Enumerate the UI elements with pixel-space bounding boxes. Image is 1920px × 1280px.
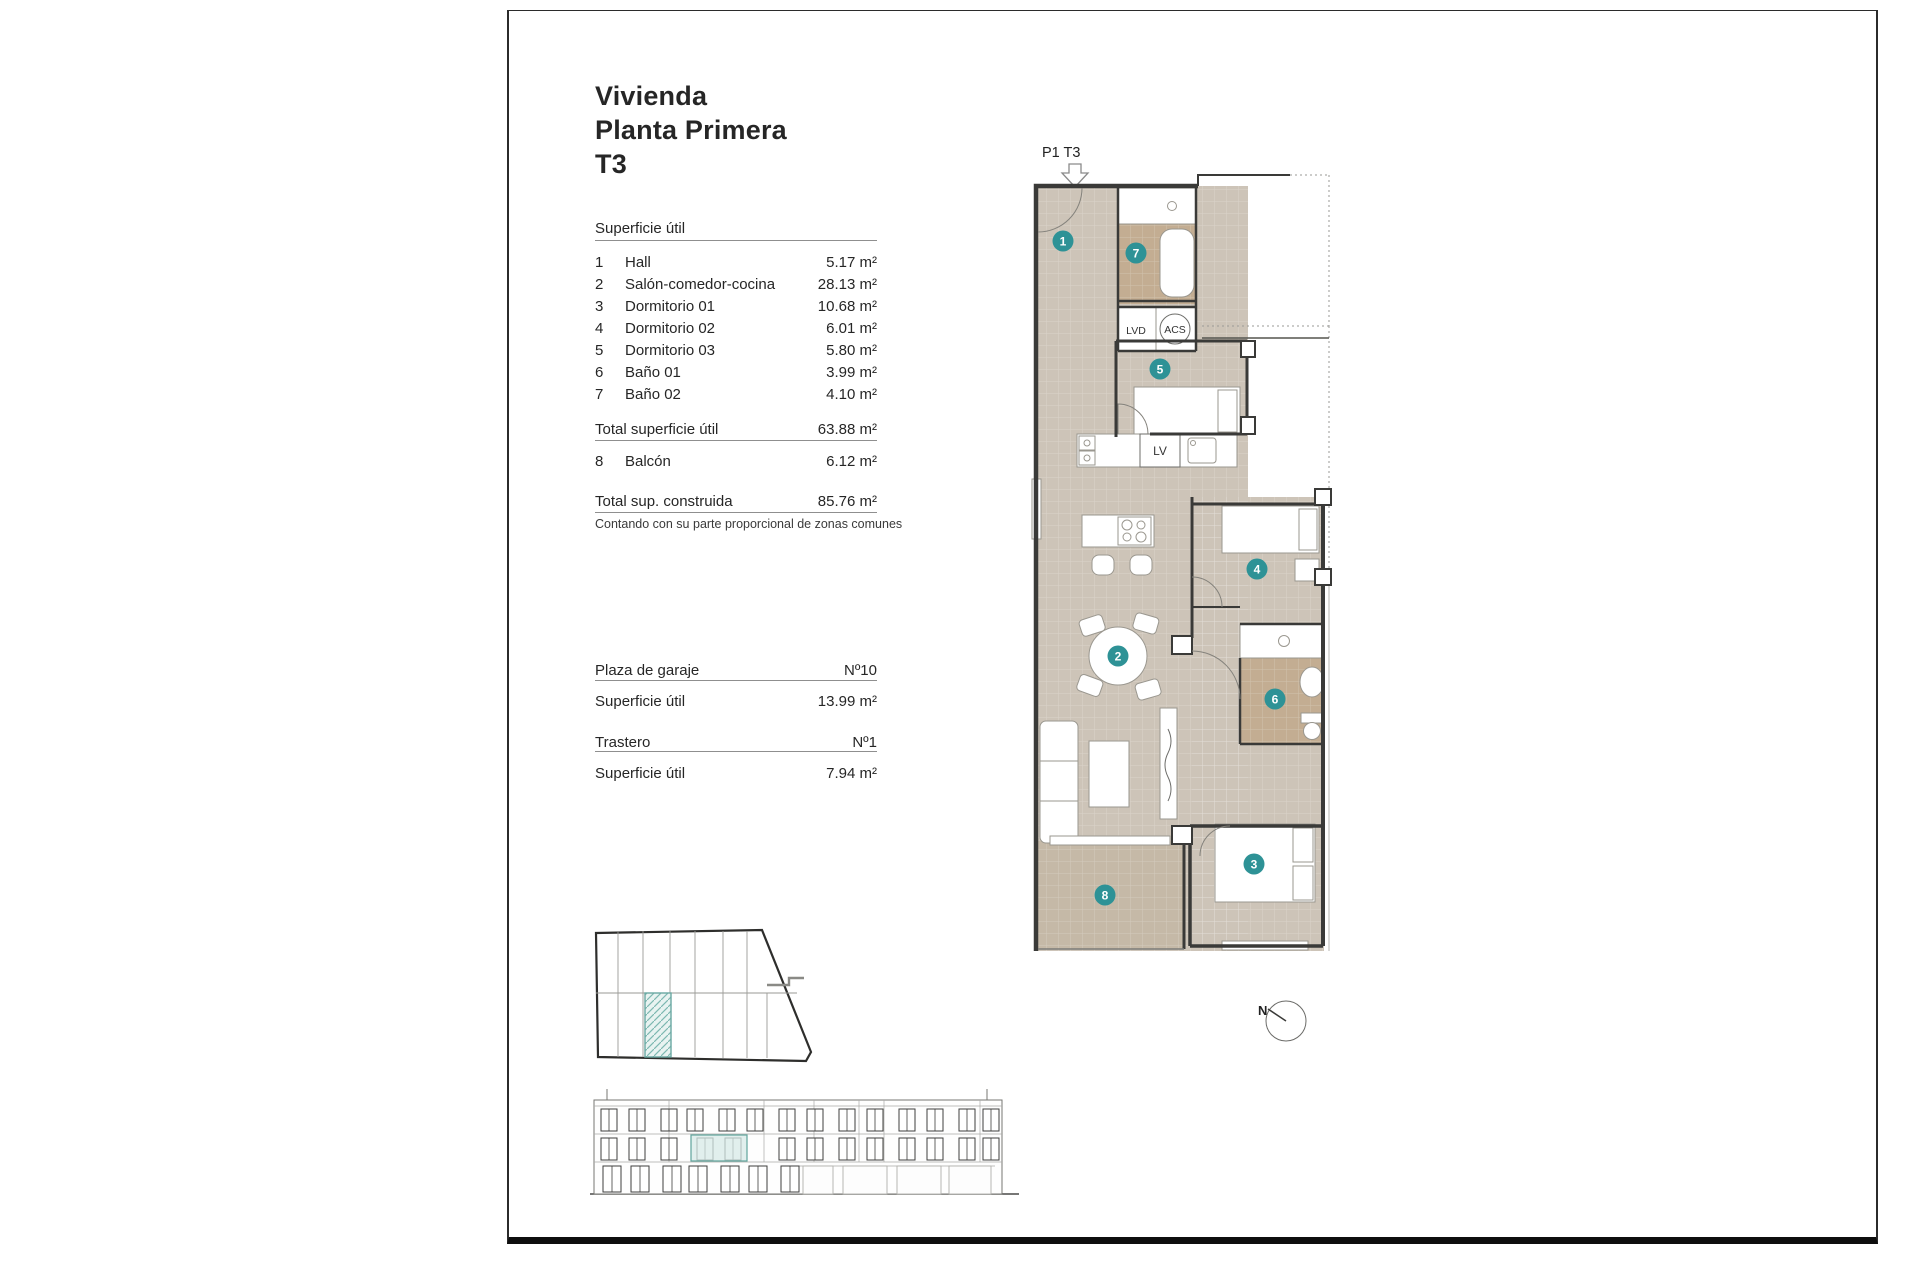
row-value: 4.10 m² <box>826 386 877 403</box>
total-built-value: 85.76 m² <box>818 493 877 510</box>
footprint-outline <box>596 930 811 1061</box>
plan-sheet-canvas: Vivienda Planta Primera T3 Superficie út… <box>0 0 1920 1280</box>
page-title: Vivienda Planta Primera T3 <box>595 79 787 181</box>
row-num: 6 <box>595 364 625 381</box>
floor-plan: P1 T3 <box>1022 129 1382 1059</box>
table-row: 3 Dormitorio 01 10.68 m² <box>595 297 877 315</box>
entry-arrow-icon <box>1062 164 1088 187</box>
floor-plan-svg: P1 T3 <box>1022 129 1382 1059</box>
north-label: N <box>1258 1003 1267 1018</box>
balcony-row: 8 Balcón 6.12 m² <box>595 452 877 470</box>
highlighted-unit-elevation <box>691 1135 747 1161</box>
row-num: 7 <box>595 386 625 403</box>
svg-text:8: 8 <box>1102 889 1109 903</box>
total-useful-row: Total superficie útil 63.88 m² <box>595 420 877 438</box>
svg-text:3: 3 <box>1251 858 1258 872</box>
total-built-label: Total sup. construida <box>595 493 733 510</box>
row-value: 6.01 m² <box>826 320 877 337</box>
row-value: 5.17 m² <box>826 254 877 271</box>
garage-number: Nº10 <box>844 662 877 679</box>
garage-area-label: Superficie útil <box>595 693 685 710</box>
highlighted-unit-hatch <box>645 993 671 1057</box>
washer-label: LVD <box>1126 325 1146 337</box>
garage-label: Plaza de garaje <box>595 662 699 679</box>
area-table-header-label: Superficie útil <box>595 220 877 237</box>
title-line-2: Planta Primera <box>595 113 787 147</box>
water-heater-label: ACS <box>1164 324 1186 336</box>
unit-tag-label: P1 T3 <box>1042 145 1080 161</box>
storage-area-value: 7.94 m² <box>826 765 877 782</box>
title-line-3: T3 <box>595 147 787 181</box>
header-underline <box>595 240 877 241</box>
footprint-svg <box>584 923 854 1083</box>
garage-area-value: 13.99 m² <box>818 693 877 710</box>
drawing-sheet: Vivienda Planta Primera T3 Superficie út… <box>507 10 1878 1244</box>
row-label: Baño 02 <box>625 386 826 403</box>
svg-text:6: 6 <box>1272 693 1279 707</box>
row-value: 3.99 m² <box>826 364 877 381</box>
svg-text:4: 4 <box>1254 563 1261 577</box>
row-value: 5.80 m² <box>826 342 877 359</box>
garage-row: Plaza de garaje Nº10 <box>595 661 877 679</box>
title-line-1: Vivienda <box>595 79 787 113</box>
elevation-svg <box>587 1086 1032 1216</box>
row-num: 1 <box>595 254 625 271</box>
garage-underline <box>595 680 877 681</box>
row-num: 4 <box>595 320 625 337</box>
table-row: 6 Baño 01 3.99 m² <box>595 363 877 381</box>
storage-area-row: Superficie útil 7.94 m² <box>595 764 877 782</box>
row-num: 8 <box>595 453 625 470</box>
dishwasher-label: LV <box>1153 444 1167 458</box>
storage-number: Nº1 <box>852 734 877 751</box>
total-underline <box>595 440 877 441</box>
storage-underline <box>595 751 877 752</box>
svg-text:2: 2 <box>1115 650 1122 664</box>
row-num: 2 <box>595 276 625 293</box>
row-num: 3 <box>595 298 625 315</box>
row-label: Baño 01 <box>625 364 826 381</box>
table-row: 4 Dormitorio 02 6.01 m² <box>595 319 877 337</box>
row-label: Dormitorio 03 <box>625 342 826 359</box>
storage-area-label: Superficie útil <box>595 765 685 782</box>
table-row: 2 Salón-comedor-cocina 28.13 m² <box>595 275 877 293</box>
table-row: 1 Hall 5.17 m² <box>595 253 877 271</box>
total-useful-value: 63.88 m² <box>818 421 877 438</box>
total-useful-label: Total superficie útil <box>595 421 718 438</box>
row-label: Dormitorio 01 <box>625 298 818 315</box>
built-footnote: Contando con su parte proporcional de zo… <box>595 517 915 531</box>
table-row: 7 Baño 02 4.10 m² <box>595 385 877 403</box>
row-label: Hall <box>625 254 826 271</box>
storage-label: Trastero <box>595 734 650 751</box>
svg-text:1: 1 <box>1060 235 1067 249</box>
row-label: Dormitorio 02 <box>625 320 826 337</box>
storage-row: Trastero Nº1 <box>595 733 877 751</box>
row-value: 28.13 m² <box>818 276 877 293</box>
area-table-header: Superficie útil <box>595 219 877 237</box>
row-label: Salón-comedor-cocina <box>625 276 818 293</box>
row-num: 5 <box>595 342 625 359</box>
building-elevation <box>587 1086 1032 1216</box>
north-compass: N <box>1258 1001 1306 1041</box>
total-built-row: Total sup. construida 85.76 m² <box>595 492 877 510</box>
svg-text:5: 5 <box>1157 363 1164 377</box>
built-underline <box>595 512 877 513</box>
row-value: 10.68 m² <box>818 298 877 315</box>
garage-area-row: Superficie útil 13.99 m² <box>595 692 877 710</box>
table-row: 5 Dormitorio 03 5.80 m² <box>595 341 877 359</box>
svg-text:7: 7 <box>1133 247 1140 261</box>
row-label: Balcón <box>625 453 826 470</box>
footprint-key-plan <box>584 923 854 1083</box>
antenna-ticks <box>607 1089 987 1100</box>
row-value: 6.12 m² <box>826 453 877 470</box>
